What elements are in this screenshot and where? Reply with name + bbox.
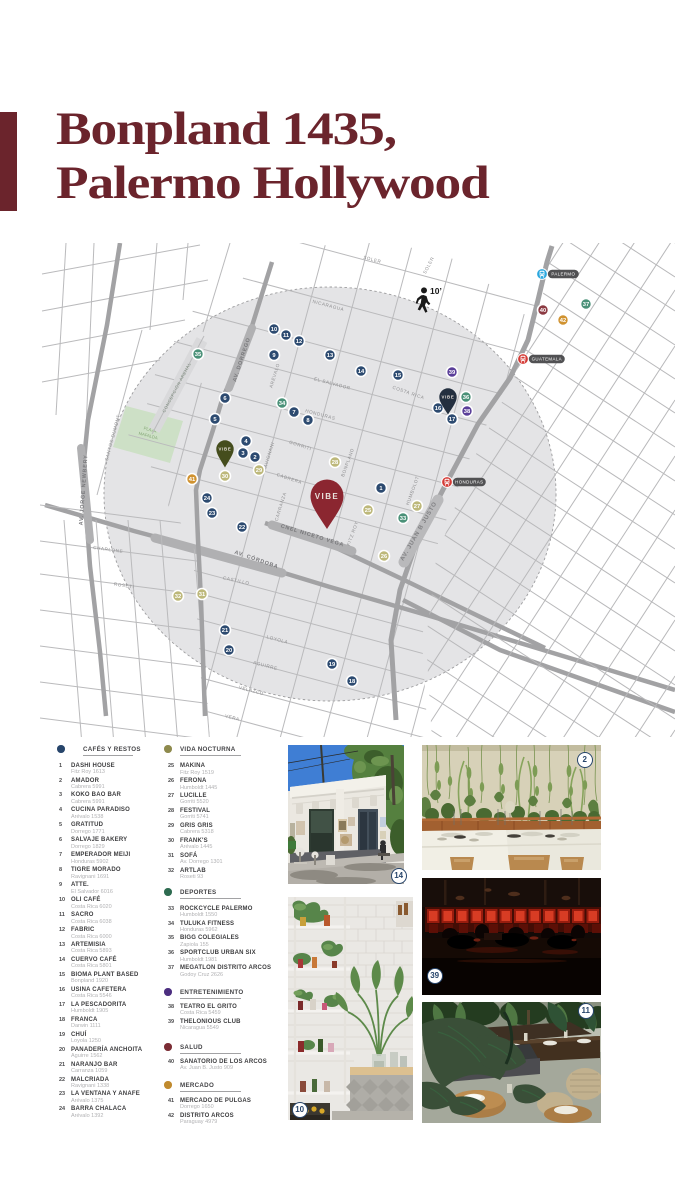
svg-text:12: 12 xyxy=(296,339,302,345)
svg-text:HONDURAS: HONDURAS xyxy=(455,480,483,485)
svg-text:37: 37 xyxy=(583,302,589,308)
svg-text:40: 40 xyxy=(540,308,546,314)
svg-text:27: 27 xyxy=(414,504,420,510)
svg-text:24: 24 xyxy=(204,496,211,502)
svg-text:26: 26 xyxy=(381,554,388,560)
svg-text:32: 32 xyxy=(175,594,181,600)
svg-text:SOLER: SOLER xyxy=(422,256,435,275)
svg-text:GUATEMALA: GUATEMALA xyxy=(532,357,562,362)
svg-text:25: 25 xyxy=(365,508,372,514)
svg-text:33: 33 xyxy=(400,516,407,522)
svg-text:VIBE: VIBE xyxy=(218,447,231,452)
svg-text:VIBE: VIBE xyxy=(441,395,454,400)
svg-text:42: 42 xyxy=(560,318,566,324)
svg-text:30: 30 xyxy=(222,474,228,480)
svg-text:PALERMO: PALERMO xyxy=(551,272,575,277)
svg-text:10’: 10’ xyxy=(430,286,442,296)
svg-text:31: 31 xyxy=(199,592,206,598)
svg-text:20: 20 xyxy=(226,648,232,654)
svg-text:28: 28 xyxy=(332,460,339,466)
svg-text:29: 29 xyxy=(256,468,263,474)
svg-text:7: 7 xyxy=(292,410,295,416)
svg-text:10: 10 xyxy=(271,327,277,333)
svg-text:13: 13 xyxy=(327,353,334,359)
svg-text:39: 39 xyxy=(449,370,456,376)
svg-text:21: 21 xyxy=(222,628,229,634)
svg-text:22: 22 xyxy=(239,525,245,531)
svg-text:2: 2 xyxy=(253,455,256,461)
svg-text:VIBE: VIBE xyxy=(315,492,339,501)
svg-text:15: 15 xyxy=(395,373,402,379)
svg-text:23: 23 xyxy=(209,511,216,517)
svg-text:41: 41 xyxy=(189,477,196,483)
svg-text:17: 17 xyxy=(449,417,455,423)
svg-text:VERA: VERA xyxy=(225,713,241,722)
svg-text:11: 11 xyxy=(283,333,290,339)
svg-text:35: 35 xyxy=(195,352,202,358)
svg-text:34: 34 xyxy=(279,401,286,407)
svg-text:14: 14 xyxy=(358,369,365,375)
svg-text:19: 19 xyxy=(329,662,336,668)
svg-text:SOLER: SOLER xyxy=(363,255,382,265)
svg-text:36: 36 xyxy=(463,395,470,401)
svg-text:18: 18 xyxy=(349,679,356,685)
svg-text:16: 16 xyxy=(435,406,442,412)
svg-text:38: 38 xyxy=(464,409,471,415)
